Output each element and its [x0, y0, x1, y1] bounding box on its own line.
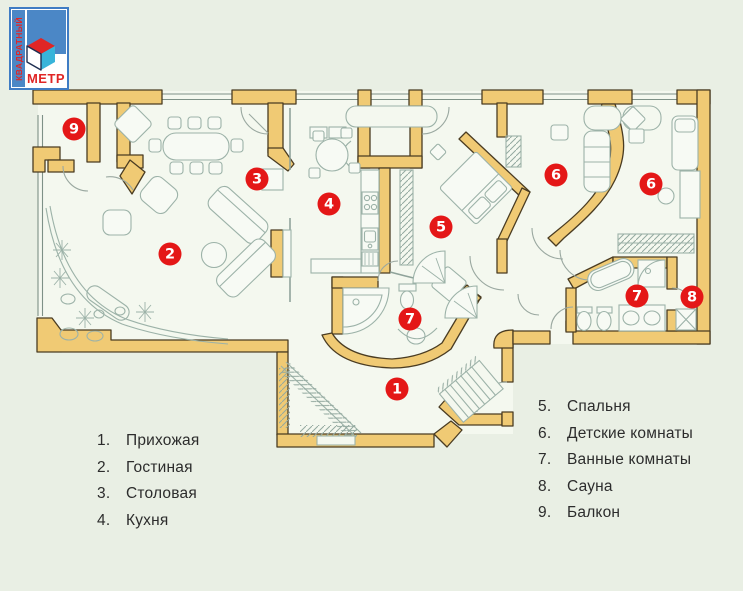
room-marker-3: 3 [246, 168, 269, 191]
legend-item-label: Детские комнаты [567, 425, 693, 443]
room-marker-7: 7 [626, 285, 649, 308]
legend-item-label: Прихожая [126, 432, 199, 450]
legend-item-number: 6. [538, 425, 562, 443]
legend-item-label: Гостиная [126, 459, 193, 477]
legend-left: 1.Прихожая2.Гостиная3.Столовая4.Кухня [97, 428, 199, 534]
legend-item-number: 2. [97, 459, 121, 477]
legend-item: 8.Сауна [538, 474, 693, 501]
room-marker-9: 9 [63, 118, 86, 141]
legend-item-number: 1. [97, 432, 121, 450]
room-marker-5: 5 [430, 216, 453, 239]
logo-vertical-strip: КВАДРАТНЫЙ [12, 10, 25, 87]
legend-right: 5.Спальня6.Детские комнаты7.Ванные комна… [538, 394, 693, 527]
legend-item-label: Сауна [567, 478, 613, 496]
logo-kvadratny-metr: КВАДРАТНЫЙ МЕТР [9, 7, 69, 90]
legend-item-number: 9. [538, 504, 562, 522]
legend-item-number: 4. [97, 512, 121, 530]
room-marker-4: 4 [318, 193, 341, 216]
room-marker-6: 6 [545, 164, 568, 187]
room-marker-6: 6 [640, 173, 663, 196]
legend-item-label: Кухня [126, 512, 168, 530]
legend-item: 6.Детские комнаты [538, 421, 693, 448]
legend-item: 9.Балкон [538, 500, 693, 527]
room-marker-2: 2 [159, 243, 182, 266]
room-marker-8: 8 [681, 286, 704, 309]
legend-item: 3.Столовая [97, 481, 199, 508]
legend-item: 2.Гостиная [97, 455, 199, 482]
legend-item-number: 7. [538, 451, 562, 469]
legend-item-label: Спальня [567, 398, 631, 416]
legend-item-number: 8. [538, 478, 562, 496]
legend-item: 1.Прихожая [97, 428, 199, 455]
room-marker-1: 1 [386, 378, 409, 401]
logo-vertical-text: КВАДРАТНЫЙ [14, 17, 24, 81]
logo-bottom-text: МЕТР [25, 71, 67, 86]
legend-item: 7.Ванные комнаты [538, 447, 693, 474]
legend-item-number: 5. [538, 398, 562, 416]
legend-item: 5.Спальня [538, 394, 693, 421]
floor-plan-page: КВАДРАТНЫЙ МЕТР 12345667789 1.Прихожая2.… [0, 0, 743, 591]
cube-icon [25, 35, 57, 75]
legend-item-label: Столовая [126, 485, 197, 503]
legend-item: 4.Кухня [97, 508, 199, 535]
room-marker-7: 7 [399, 308, 422, 331]
legend-item-number: 3. [97, 485, 121, 503]
legend-item-label: Балкон [567, 504, 620, 522]
legend-item-label: Ванные комнаты [567, 451, 691, 469]
